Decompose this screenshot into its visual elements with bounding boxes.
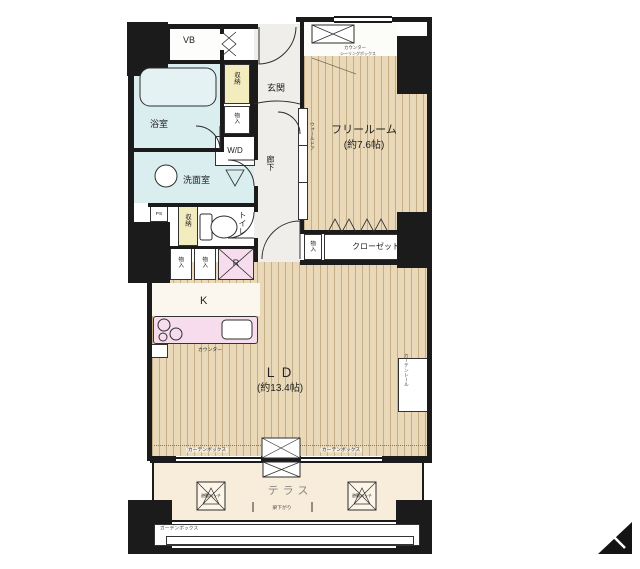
room-label-bath: 浴室 [150,120,168,129]
washer-pan [226,170,244,186]
label-washer-dryer: W/D [215,147,255,155]
room-label-hallway: 廊下 [266,155,274,171]
label-refrigerator: R [218,259,254,268]
label-storage-entrance: 収納 [234,72,240,85]
toilet-bowl [211,216,237,238]
label-wall-door: ウォールドア [310,122,315,151]
label-curtain-rail: カーテンレール [404,353,409,387]
room-label-toilet: トイレ [238,211,246,235]
entrance-step-line [254,101,300,104]
room-label-closet: クローゼット [326,243,426,251]
room-label-terrace: テラス [250,486,330,497]
toilet-tank [200,214,212,240]
label-kitchen-counter: カウンター [192,348,228,353]
plan-linework [0,0,640,569]
label-curtain-box-right: カーテンボックス [320,448,362,453]
bathtub [140,68,216,106]
stove-burner [159,333,167,341]
label-cabinet-a: 物入 [178,256,184,267]
kitchen-sink [222,320,252,339]
label-curtain-box-left: カーテンボックス [186,448,228,453]
room-label-washroom: 洗面室 [183,176,210,185]
room-label-free-room: フリールーム [314,125,414,136]
room-label-vb: VB [183,36,195,45]
label-counter-box-line1: カウンター [337,46,373,50]
beam-diagonal [312,58,356,74]
room-label-kitchen: K [200,296,207,307]
label-cabinet-entrance: 物入 [234,112,240,123]
vb-door-symbol [222,32,236,56]
room-label-entrance: 玄関 [267,84,285,93]
label-counter-box-line2: シーリングボックス [338,52,378,56]
label-storage-toilet: 収納 [185,214,191,227]
stove-burner [170,328,182,340]
wash-basin [155,165,177,187]
label-beam-note: 梁下がり [266,506,297,511]
room-label-ld-size: (約13.4帖) [230,384,330,394]
washroom-door-arc [228,160,254,186]
label-pipe-space: PS [154,212,165,217]
entry-door-arc [259,27,296,64]
label-evac-hatch-right: 避難ハッチ [354,494,371,498]
label-cabinet-b: 物入 [202,256,208,267]
closet-bifold [328,219,388,232]
room-label-free-room-size: (約7.6帖) [314,141,414,151]
hall-ld-door-arc [262,221,300,259]
label-garden-box: ガーデンボックス [160,526,198,531]
label-cabinet-c: 物入 [310,240,316,251]
floor-plan: VB 浴室 洗面室 玄関 廊下 トイレ フリールーム (約7.6帖) クローゼッ… [0,0,640,569]
room-label-ld: ＬＤ [230,366,330,379]
hall-freeroom-door-arc [278,112,300,134]
stove-burner [158,319,170,331]
label-evac-hatch-left: 避難ハッチ [203,494,220,498]
north-arrow-icon [598,522,632,554]
